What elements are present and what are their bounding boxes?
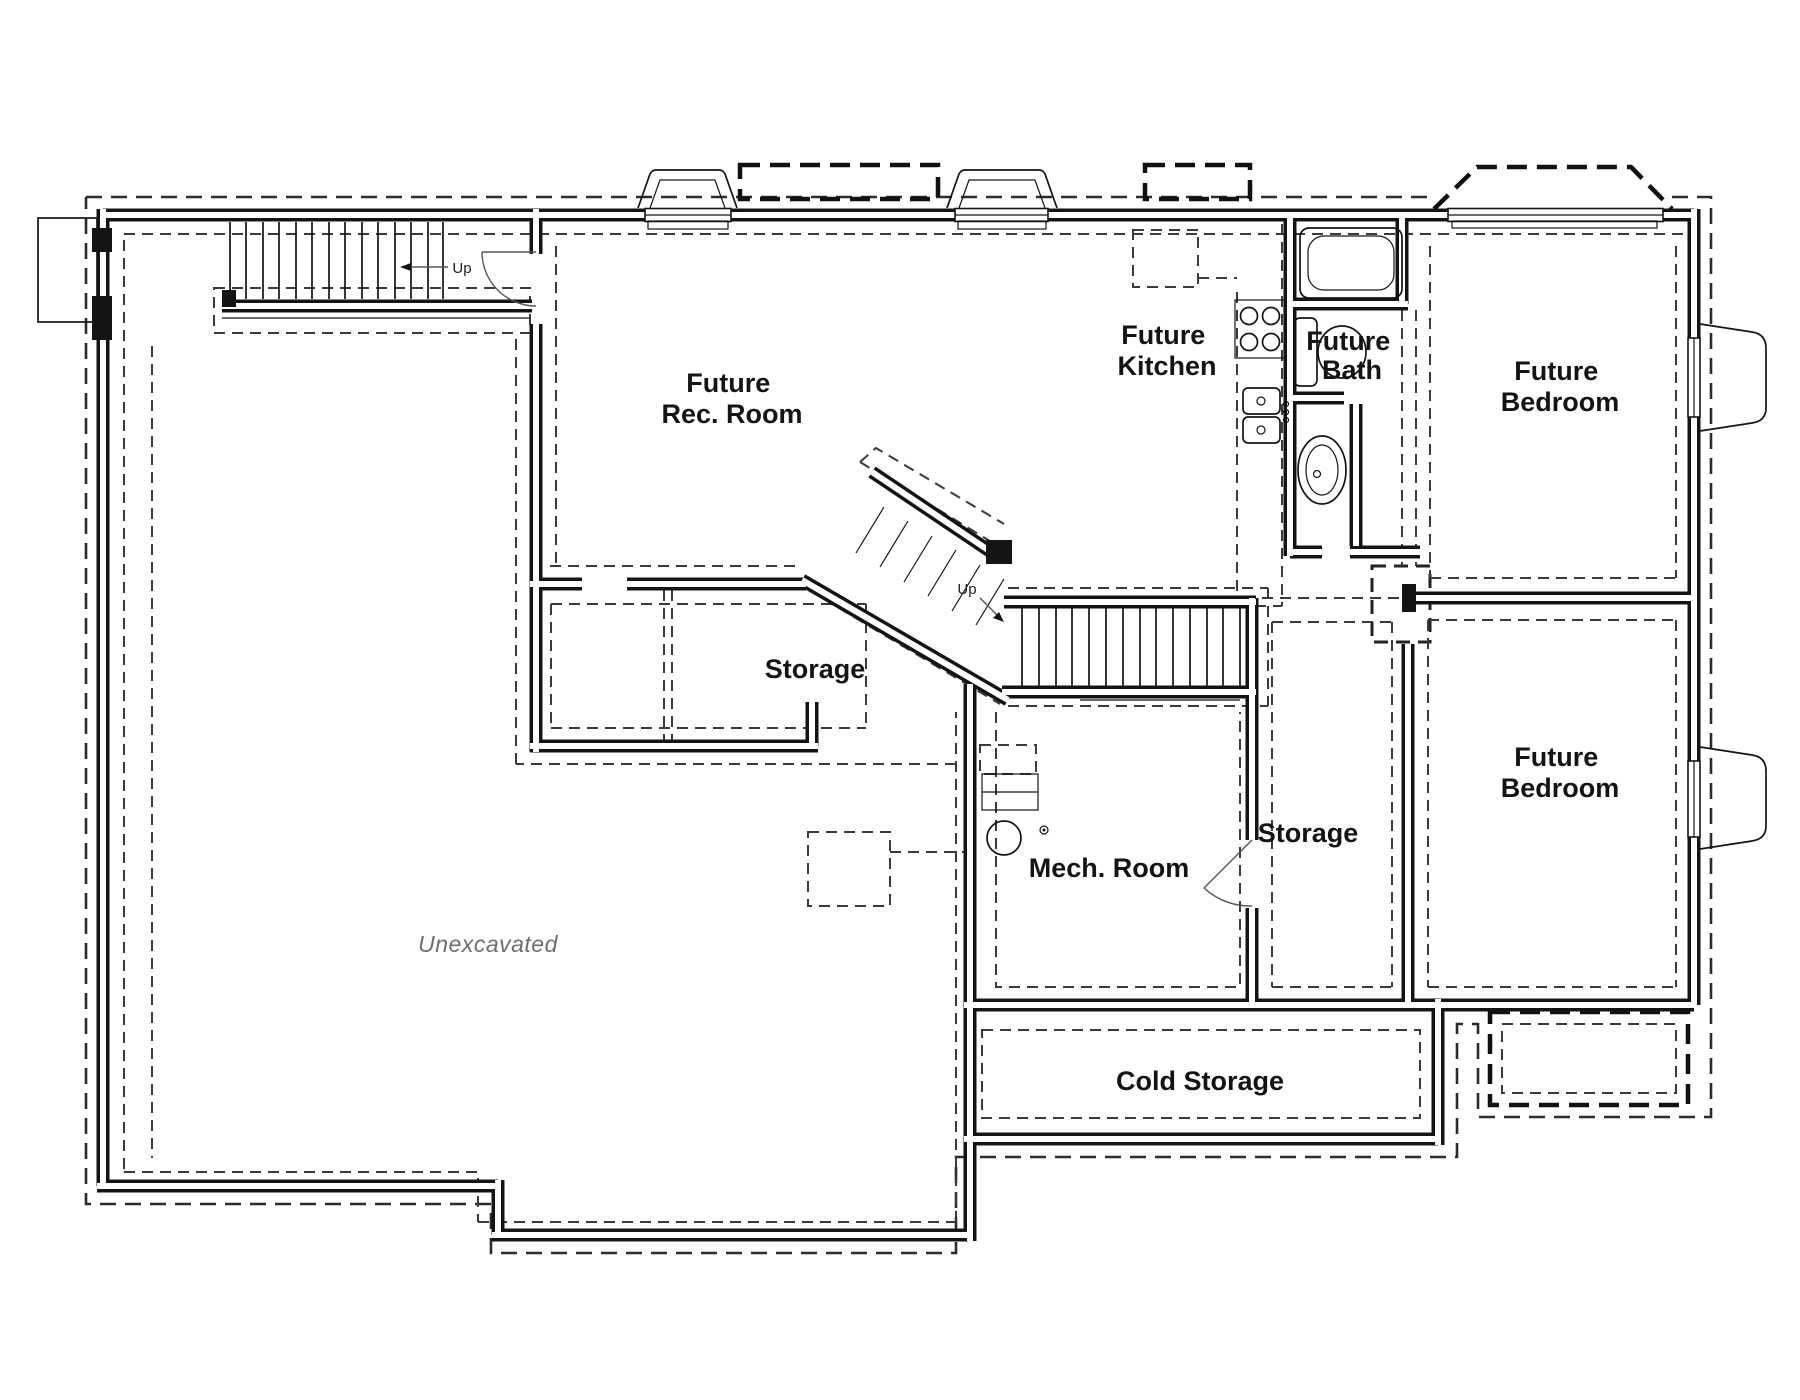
bay-window [1448,209,1663,229]
room-label-mech-room: Mech. Room [1029,853,1190,883]
window-wells [38,170,1766,849]
room-label-storage-right: Storage [1258,818,1359,848]
room-label-bedroom-top: Future Bedroom [1501,356,1620,417]
furnace [980,745,1038,810]
room-label-bedroom-bottom: Future Bedroom [1501,742,1620,803]
window-top-1 [645,209,731,230]
window-well-top-1 [638,170,737,208]
stove [1235,300,1284,358]
door-mech-room [1204,840,1252,906]
basement-floor-plan: Future Rec. Room Future Kitchen Future B… [0,0,1800,1400]
room-labels: Future Rec. Room Future Kitchen Future B… [418,260,1619,1096]
window-right-1 [1688,338,1700,417]
room-label-unexcavated: Unexcavated [418,931,558,957]
interior-dashed-lines [124,224,1688,1222]
room-label-kitchen: Future Kitchen [1117,320,1216,381]
walls [97,209,1694,1241]
up-label-main: Up [957,581,976,598]
leaders [400,263,1004,622]
window-right-2 [1688,761,1700,837]
room-label-bath: Future Bath [1306,326,1398,385]
bath-sink [1298,436,1346,504]
door-rec-room [482,252,536,306]
egress-window-wells-dashed [740,165,1688,1105]
bay-window-footing [1434,167,1672,209]
up-label-entry: Up [452,260,471,277]
room-label-storage-left: Storage [765,654,866,684]
footing-outline-dashed [86,167,1711,1253]
window-well-top-2 [947,170,1057,208]
room-label-cold-storage: Cold Storage [1116,1066,1284,1096]
stair-newel [986,540,1012,564]
room-label-rec-room: Future Rec. Room [661,368,802,429]
bathtub [1300,228,1402,298]
refrigerator [1133,230,1198,287]
rear-stoop-footing [1490,1012,1688,1105]
left-areaway [38,218,97,322]
pad-footing [808,832,890,906]
window-top-2 [955,209,1048,230]
basement-floor-plan-page: Future Rec. Room Future Kitchen Future B… [0,0,1800,1400]
up-arrow-entry [400,263,411,271]
